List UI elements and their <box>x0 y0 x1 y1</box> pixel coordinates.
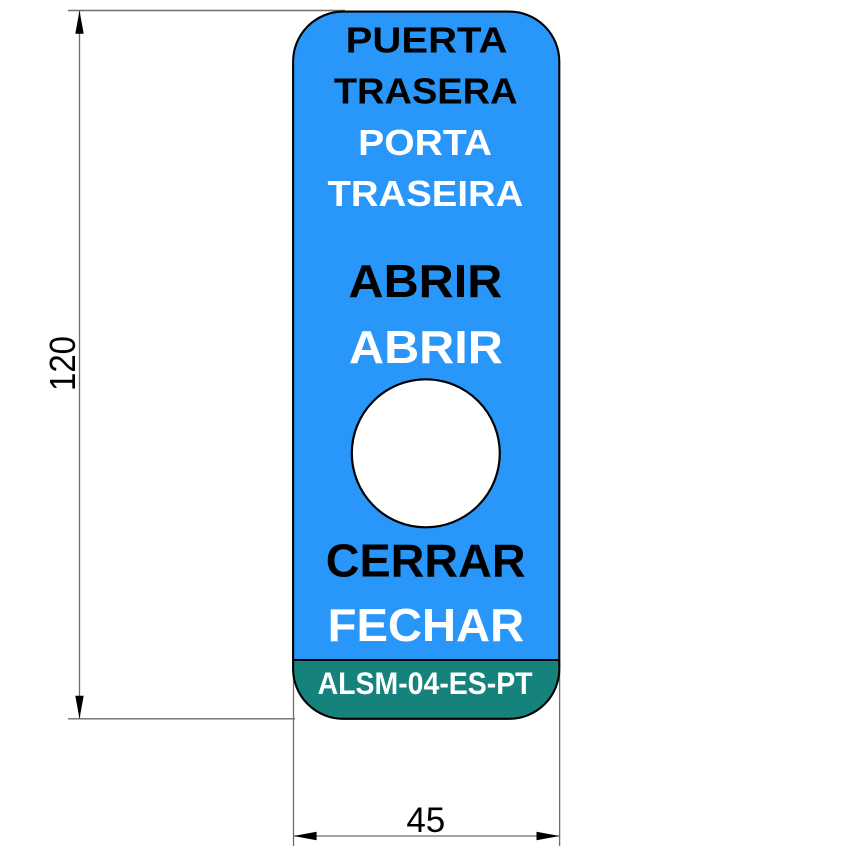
svg-text:120: 120 <box>42 336 83 391</box>
svg-text:ALSM-04-ES-PT: ALSM-04-ES-PT <box>318 665 533 701</box>
svg-text:ABRIR: ABRIR <box>349 255 503 307</box>
svg-text:TRASERA: TRASERA <box>334 72 518 112</box>
svg-text:ABRIR: ABRIR <box>349 321 503 373</box>
svg-text:FECHAR: FECHAR <box>328 599 525 651</box>
svg-text:TRASEIRA: TRASEIRA <box>328 174 524 214</box>
svg-text:CERRAR: CERRAR <box>326 535 526 587</box>
svg-text:PUERTA: PUERTA <box>346 21 508 61</box>
svg-text:45: 45 <box>406 801 445 840</box>
svg-text:PORTA: PORTA <box>358 123 492 163</box>
